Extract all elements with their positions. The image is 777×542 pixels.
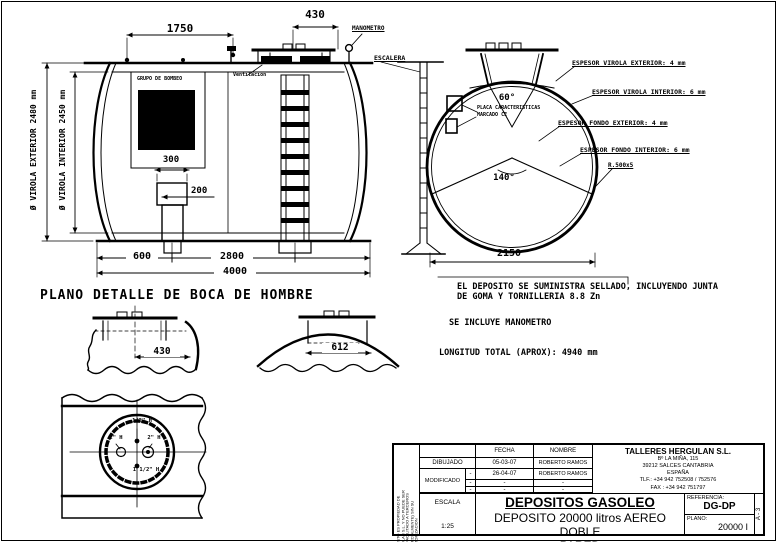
note-sellado-line2: DE GOMA Y TORNILLERIA 8.8 Zn [457,293,600,302]
angle-60: 60° [495,94,519,103]
dim-virola-exterior: Ø VIROLA EXTERIOR 2480 mm [30,60,38,240]
title-block: ESTE DOCUMENTO ES PROPIEDAD DE TALLERES … [392,443,765,536]
label-ventilacion: Ventilacion [233,73,266,78]
col-fecha: FECHA [476,445,534,458]
label-manometro: MANOMETRO [352,26,385,32]
modificado-date-2: - [476,480,534,487]
dim-200: 200 [191,187,207,196]
drawing-title-cell: DEPOSITOS GASOLEO DEPOSITO 20000 litros … [476,493,685,534]
dim-4000: 4000 [214,267,256,277]
callout-radio: R.500x5 [608,163,633,169]
company-address-line: Bº LA MIÑA, 115 [593,456,763,463]
dim-1750: 1750 [160,23,200,34]
escala-value: 1:25 [420,523,475,530]
angle-140: 140° [488,174,520,183]
plano-label: PLANO: [685,515,754,522]
col-nombre: NOMBRE [534,445,593,458]
dim-2800: 2800 [211,252,253,262]
company-name: TALLERES HERGULAN S.L. [593,447,763,456]
escala-label: ESCALA [420,499,475,506]
company-country-line: ESPAÑA [593,470,763,477]
company-fax-line: FAX : +34 942 751797 [593,485,763,492]
escala-cell: ESCALA 1:25 [420,493,476,534]
dibujado-name: ROBERTO RAMOS [534,458,593,469]
ownership-strip: ESTE DOCUMENTO ES PROPIEDAD DE TALLERES … [394,445,420,534]
dim-virola-interior: Ø VIROLA INTERIOR 2450 mm [59,60,67,240]
plano-value: 20000 I [685,522,754,532]
modificado-name-2: - [534,480,593,487]
dim-600: 600 [126,252,158,262]
referencia-cell: REFERENCIA: DG-DP [685,493,755,514]
port-right: 2" H [140,436,168,442]
label-escalera: ESCALERA [374,55,405,62]
plano-cell: PLANO: 20000 I [685,514,755,534]
label-marcado-ce: MARCADO CE [477,113,507,118]
note-longitud-total: LONGITUD TOTAL (APROX): 4940 mm [439,349,598,358]
ownership-note: ESTE DOCUMENTO ES PROPIEDAD DE TALLERES … [397,487,420,542]
modificado-date-1: 26-04-07 [476,469,534,480]
callout-espesor-virola-exterior: ESPESOR VIROLA EXTERIOR: 4 mm [572,60,686,67]
dim-430-detail: 430 [144,347,180,357]
table-corner-cell [420,445,476,458]
note-sellado-line1: EL DEPOSITO SE SUMINISTRA SELLADO, INCLU… [457,283,718,292]
port-left: 2" H [102,436,130,442]
sheet-size: A - 3 [756,508,762,520]
modificado-dash-1: - [466,469,476,480]
referencia-value: DG-DP [685,501,754,512]
modificado-name-1: ROBERTO RAMOS [534,469,593,480]
company-phone-line: TLF.: +34 942 752508 / 752576 [593,477,763,484]
row-dibujado-label: DIBUJADO [420,458,476,469]
label-placa-caracteristicas: PLACA CARACTERISTICAS [477,106,540,111]
dim-2150: 2150 [489,249,529,259]
dim-612-detail: 612 [322,343,358,353]
dibujado-date: 05-03-07 [476,458,534,469]
blueprint-sheet: 1750 430 MANOMETRO ESCALERA GRUPO DE BOM… [0,0,777,542]
drawing-title-line1: DEPOSITOS GASOLEO [476,495,684,510]
referencia-label: REFERENCIA: [685,494,754,501]
callout-espesor-fondo-exterior: ESPESOR FONDO EXTERIOR: 4 mm [558,120,668,127]
sheet-size-cell: A - 3 [755,493,763,534]
callout-espesor-fondo-interior: ESPESOR FONDO INTERIOR: 6 mm [580,147,690,154]
port-bottom: 1 1/2" H [126,468,166,474]
port-top: 1/2" H [124,419,160,425]
note-manometro: SE INCLUYE MANOMETRO [449,319,551,328]
modificado-dash-2: - [466,480,476,487]
callout-espesor-virola-interior: ESPESOR VIROLA INTERIOR: 6 mm [592,89,706,96]
label-grupo-bombeo: GRUPO DE BOMBEO [137,77,182,82]
detail-title: PLANO DETALLE DE BOCA DE HOMBRE [40,289,314,302]
drawing-title-line2: DEPOSITO 20000 litros AEREO DOBLE [476,511,684,539]
row-modificado-label: MODIFICADO [420,469,466,493]
dim-300: 300 [157,156,185,165]
company-block: TALLERES HERGULAN S.L. Bº LA MIÑA, 115 3… [593,445,763,493]
dim-430-top: 430 [297,9,333,20]
